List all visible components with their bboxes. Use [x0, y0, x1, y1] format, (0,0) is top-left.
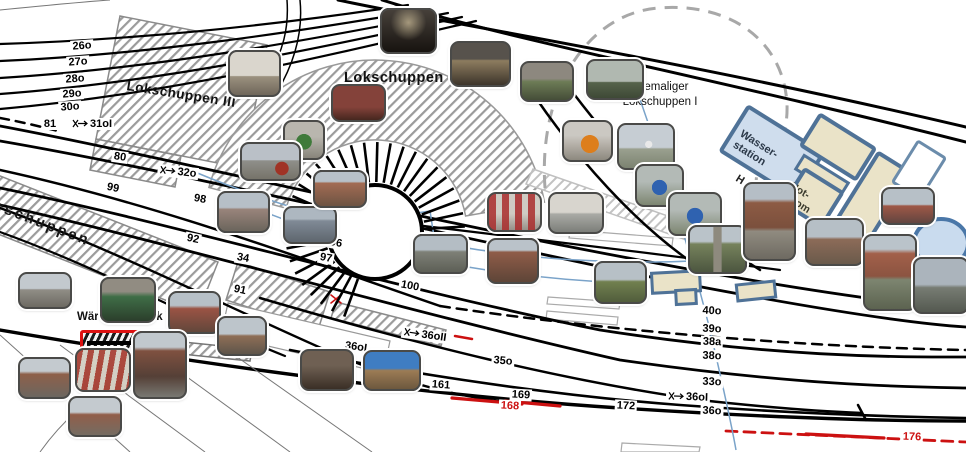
track-number-label: 30o	[58, 100, 82, 114]
photo-thumbnail-red-house	[168, 291, 221, 334]
track-number-label: 80	[111, 150, 129, 164]
track-number-label: 34	[234, 251, 252, 266]
photo-thumbnail-interior-green	[520, 61, 574, 102]
photo-thumbnail-interior-light	[228, 50, 281, 97]
photo-thumbnail-signal-box	[18, 357, 71, 399]
photo-thumbnail-street-station	[18, 272, 72, 309]
photo-thumbnail-field-tower	[617, 123, 675, 170]
photo-thumbnail-gantry	[913, 257, 966, 314]
building-beige-small-2	[676, 289, 697, 304]
track-number-label: 40o	[700, 305, 723, 318]
photo-thumbnail-red-shed	[881, 187, 935, 225]
track-number-label: 39o	[700, 323, 723, 336]
photo-thumbnail-interior-wood	[450, 41, 511, 87]
photo-thumbnail-tracks-yard	[413, 234, 468, 274]
track-number-label: 98	[191, 192, 209, 207]
switch-icon	[159, 165, 177, 176]
photo-thumbnail-interior-red	[331, 84, 386, 122]
photo-thumbnail-interior-lockers	[487, 192, 542, 232]
photo-thumbnail-tall-brick	[743, 182, 796, 261]
track-number-label: 33o	[700, 376, 723, 389]
photo-thumbnail-tracks-grass	[688, 225, 747, 274]
photo-thumbnail-station-building	[68, 396, 122, 437]
building-beige-small-3	[736, 281, 775, 301]
photo-thumbnail-panorama-train	[363, 350, 421, 391]
photo-thumbnail-interior-office	[548, 192, 604, 234]
track-number-label: 38o	[700, 350, 723, 363]
photo-thumbnail-dark-car	[300, 349, 354, 391]
switch-icon	[72, 119, 89, 128]
photo-thumbnail-interior-cab	[100, 277, 156, 323]
track-number-label: 26o	[70, 39, 94, 53]
track-number-label: 27o	[66, 55, 90, 69]
photo-thumbnail-lever-frame	[75, 348, 131, 392]
track-number-label: 97	[317, 251, 335, 266]
photo-thumbnail-brick-building	[313, 170, 367, 208]
photo-thumbnail-brick-yard	[805, 218, 864, 266]
track-number-label: 35o	[491, 354, 515, 368]
track-number-label: 172	[615, 399, 638, 412]
track-number-label: 168	[499, 399, 522, 412]
photo-thumbnail-signal-box-tall	[133, 331, 187, 399]
photo-thumbnail-house-track	[217, 191, 270, 233]
track-number-label: 81	[42, 118, 58, 130]
track-number-label: 38a	[701, 336, 724, 349]
photo-thumbnail-water-tower	[863, 234, 917, 311]
track-number-label: 36oI	[666, 390, 710, 404]
track-number-label: 31oI	[70, 118, 114, 130]
photo-thumbnail-structure-field	[586, 59, 644, 100]
track-number-label: 29o	[60, 87, 84, 101]
track-number-label: 176	[901, 431, 924, 444]
switch-icon	[668, 391, 685, 401]
photo-thumbnail-path-green	[594, 261, 647, 304]
photo-thumbnail-interior-dark	[380, 8, 437, 54]
photo-thumbnail-street-car	[240, 142, 301, 181]
photo-thumbnail-canopy-train	[283, 206, 337, 244]
photo-thumbnail-brick-row	[487, 238, 539, 284]
track-number-label: 36o	[700, 405, 723, 418]
switch-icon	[403, 327, 421, 338]
depot-track-plan: Lokschuppen III Lokschuppen II ehemalige…	[0, 0, 966, 452]
photo-thumbnail-machine-orange	[562, 120, 613, 162]
track-number-label: 161	[429, 378, 452, 392]
track-number-label: 28o	[63, 72, 87, 86]
photo-thumbnail-long-building	[217, 316, 267, 356]
